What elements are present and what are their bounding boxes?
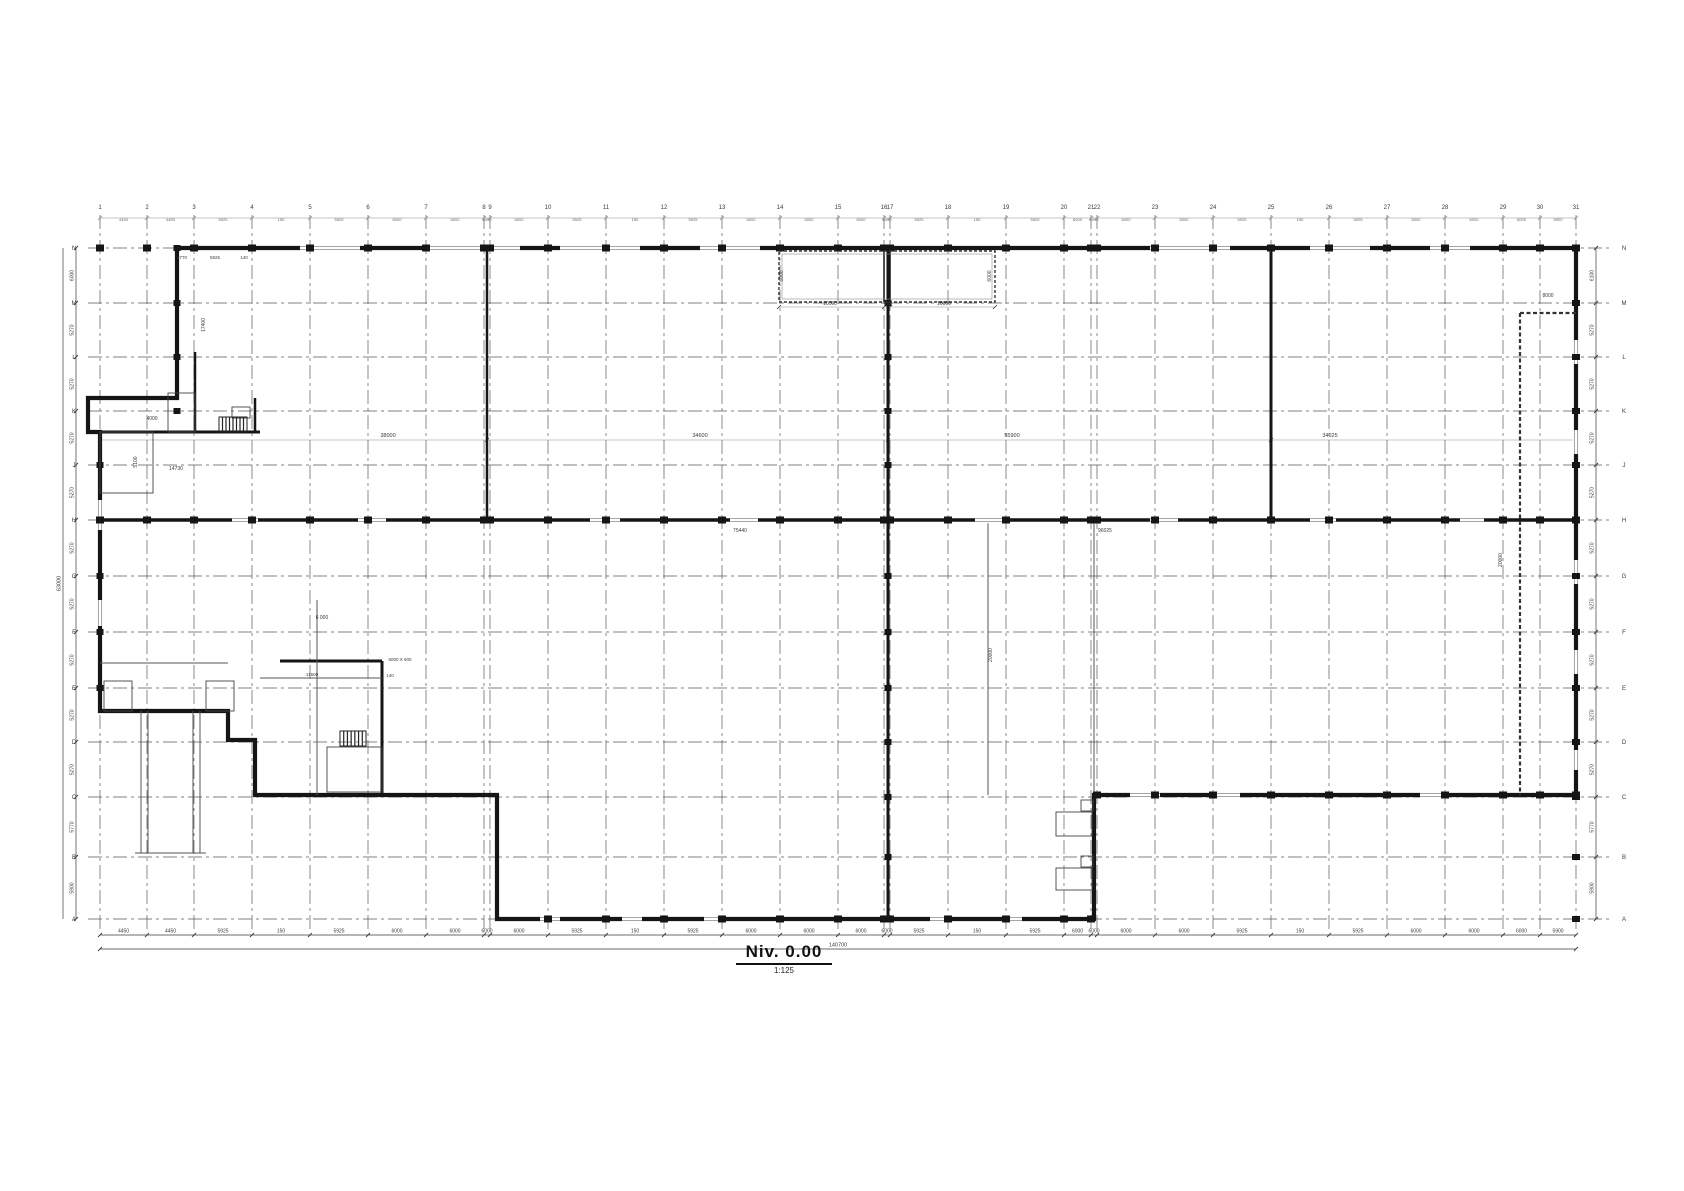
grid-col-label: 18 xyxy=(945,205,952,211)
grid-col-label: 11 xyxy=(603,205,610,211)
column xyxy=(97,573,104,579)
right-bay-dim: 5270 xyxy=(1590,654,1596,665)
column xyxy=(248,517,256,524)
bottom-bay-dim: 5925 xyxy=(1029,929,1040,935)
wall-opening xyxy=(1573,560,1579,584)
column xyxy=(660,245,668,252)
bottom-bay-dim: 6000 xyxy=(513,929,524,935)
bottom-bay-dim: 4450 xyxy=(165,929,176,935)
grid-col-label: 3 xyxy=(192,205,196,211)
left-bay-dim: 5270 xyxy=(70,432,76,443)
left-bay-dim: 5900 xyxy=(70,882,76,893)
column xyxy=(1002,916,1010,923)
bottom-bay-dim: 6000 xyxy=(745,929,756,935)
grid-col-label: 7 xyxy=(424,205,428,211)
column xyxy=(1572,794,1580,800)
column xyxy=(364,517,372,524)
column xyxy=(1572,354,1580,360)
grid-lines: 1234567891011121314151617181920212223242… xyxy=(72,205,1627,932)
wall-opening xyxy=(1150,245,1230,251)
left-bay-dim: 5270 xyxy=(70,598,76,609)
grid-col-label: 25 xyxy=(1268,205,1275,211)
column xyxy=(1267,792,1275,799)
column xyxy=(1572,462,1580,468)
grid-col-label: 20 xyxy=(1061,205,1068,211)
bottom-bay-dim: 6000 xyxy=(1516,929,1527,935)
grid-row-label-right: C xyxy=(1622,795,1627,801)
bottom-bay-dim: 6000 xyxy=(449,929,460,935)
left-bay-dim: 5270 xyxy=(70,709,76,720)
left-bay-dim: 5270 xyxy=(70,542,76,553)
column xyxy=(718,517,726,524)
grid-col-label: 24 xyxy=(1210,205,1217,211)
room-rect xyxy=(1056,812,1092,836)
column xyxy=(1536,792,1544,799)
grid-col-label: 22 xyxy=(1094,205,1101,211)
grid-col-label: 23 xyxy=(1152,205,1159,211)
column xyxy=(885,462,892,468)
column xyxy=(660,916,668,923)
annotation-text: 6 000 xyxy=(316,615,329,621)
wall-opening xyxy=(1460,517,1484,523)
grid-col-label: 27 xyxy=(1384,205,1391,211)
bottom-bay-dim: 6000 xyxy=(1072,929,1083,935)
bottom-bay-dim: 5925 xyxy=(687,929,698,935)
right-bay-dim: 5270 xyxy=(1590,542,1596,553)
column xyxy=(422,245,430,252)
annotation-text: 34025 xyxy=(1322,433,1337,439)
annotation-text: 8000 xyxy=(1542,293,1553,299)
column xyxy=(486,245,494,252)
column xyxy=(944,517,952,524)
grid-col-label: 29 xyxy=(1500,205,1507,211)
column xyxy=(97,517,104,523)
annotation-text: 2770 xyxy=(177,255,188,260)
column xyxy=(776,517,784,524)
column xyxy=(885,354,892,360)
column xyxy=(306,245,314,252)
level-title: Niv. 0.00 xyxy=(736,942,833,965)
column xyxy=(718,245,726,252)
grid-col-label: 2 xyxy=(145,205,149,211)
annotation-text: 96025 xyxy=(1098,528,1112,534)
wall-opening xyxy=(1420,792,1442,798)
right-bay-dim: 6100 xyxy=(1590,270,1596,281)
column xyxy=(174,408,181,414)
wall-opening xyxy=(1573,430,1579,454)
column xyxy=(1151,792,1159,799)
column xyxy=(1572,916,1580,922)
right-bay-dim: 5270 xyxy=(1590,324,1596,335)
details xyxy=(100,251,1093,890)
bottom-bay-dim: 6000 xyxy=(481,929,492,935)
annotation-text: 4000 xyxy=(146,416,157,422)
annotation-text: 11500 xyxy=(306,672,319,677)
annotation-text: 38000 xyxy=(380,433,395,439)
left-bay-dim: 5270 xyxy=(70,487,76,498)
annotations: 3800034600559003402514730754409602510000… xyxy=(133,255,1554,678)
bottom-bay-dim: 5925 xyxy=(1236,929,1247,935)
bottom-bay-dim: 5925 xyxy=(913,929,924,935)
annotation-text: 5925 xyxy=(210,255,221,260)
column xyxy=(602,916,610,923)
annotation-text: 150 xyxy=(884,301,892,306)
bottom-bay-dim: 5925 xyxy=(217,929,228,935)
annotation-text: 10000 xyxy=(937,301,951,307)
column xyxy=(1325,792,1333,799)
column xyxy=(1383,517,1391,524)
column xyxy=(885,629,892,635)
column xyxy=(1002,517,1010,524)
bottom-bay-dim: 5925 xyxy=(333,929,344,935)
column xyxy=(1383,792,1391,799)
column xyxy=(1572,408,1580,414)
column xyxy=(1209,245,1217,252)
column xyxy=(143,245,151,252)
annotation-text: 75440 xyxy=(733,528,747,534)
grid-col-label: 1 xyxy=(98,205,102,211)
grid-col-label: 14 xyxy=(777,205,784,211)
column xyxy=(248,245,256,252)
column xyxy=(1499,792,1507,799)
column xyxy=(486,517,494,524)
annotation-text: 6000 xyxy=(987,270,993,281)
room-rect xyxy=(100,432,153,493)
grid-col-label: 10 xyxy=(545,205,552,211)
column xyxy=(1060,916,1068,923)
grid-col-label: 13 xyxy=(719,205,726,211)
dimension-strings: 4450445044504450592559251501505925592560… xyxy=(57,216,1599,951)
column xyxy=(1087,916,1095,923)
grid-row-label-right: B xyxy=(1622,855,1626,861)
column xyxy=(1325,245,1333,252)
right-bay-dim: 5900 xyxy=(1590,882,1596,893)
column xyxy=(1572,517,1580,523)
column xyxy=(885,739,892,745)
column xyxy=(190,517,198,524)
wall-opening xyxy=(560,245,640,251)
bottom-bay-dim: 150 xyxy=(277,929,286,935)
grid-row-label-right: J xyxy=(1623,463,1626,469)
grid-row-label-right: F xyxy=(1622,630,1626,636)
left-bay-dim: 5270 xyxy=(70,654,76,665)
column xyxy=(885,854,892,860)
column xyxy=(544,916,552,923)
walls xyxy=(88,245,1580,923)
column xyxy=(1093,792,1101,799)
column xyxy=(1060,517,1068,524)
right-bay-dim: 5270 xyxy=(1590,378,1596,389)
bottom-bay-dim: 6000 xyxy=(1410,929,1421,935)
left-bay-dim: 5270 xyxy=(70,324,76,335)
column xyxy=(422,517,430,524)
room-rect xyxy=(327,747,382,792)
column xyxy=(1151,517,1159,524)
annotation-text: 20000 xyxy=(988,648,994,662)
column xyxy=(544,245,552,252)
room-rect xyxy=(1056,868,1092,890)
annotation-text: 5100 xyxy=(133,456,139,467)
bottom-bay-dim: 150 xyxy=(973,929,982,935)
column xyxy=(1572,300,1580,306)
column xyxy=(1572,854,1580,860)
column xyxy=(1151,245,1159,252)
right-bay-dim: 5770 xyxy=(1590,821,1596,832)
wall-opening xyxy=(1573,340,1579,364)
column xyxy=(1572,739,1580,745)
column xyxy=(1441,517,1449,524)
wall-opening xyxy=(700,245,760,251)
column xyxy=(1325,517,1333,524)
annotation-text: 14730 xyxy=(169,466,183,472)
column xyxy=(885,408,892,414)
left-bay-dim: 5770 xyxy=(70,821,76,832)
column xyxy=(1209,517,1217,524)
column xyxy=(1441,792,1449,799)
right-bay-dim: 5270 xyxy=(1590,432,1596,443)
annotation-text: 17400 xyxy=(201,318,207,332)
grid-row-label-right: K xyxy=(1622,409,1626,415)
column xyxy=(885,245,892,251)
grid-row-label-right: L xyxy=(1622,355,1626,361)
column xyxy=(1441,245,1449,252)
column xyxy=(885,573,892,579)
column xyxy=(174,300,181,306)
column xyxy=(97,629,104,635)
column xyxy=(1093,245,1101,252)
annotation-text: 10000 xyxy=(823,301,837,307)
bottom-bay-dim: 6000 xyxy=(1088,929,1099,935)
title-block: Niv. 0.00 1:125 xyxy=(684,942,884,975)
column xyxy=(885,517,892,523)
bottom-bay-dim: 150 xyxy=(1296,929,1305,935)
column xyxy=(1499,245,1507,252)
annotation-text: 34600 xyxy=(692,433,707,439)
column xyxy=(885,916,892,922)
wall-opening xyxy=(430,245,520,251)
wall-opening xyxy=(730,517,758,523)
bottom-bay-dim: 6000 xyxy=(391,929,402,935)
column xyxy=(1572,573,1580,579)
column xyxy=(364,245,372,252)
drawing-sheet: 1234567891011121314151617181920212223242… xyxy=(0,0,1684,1191)
scale-label: 1:125 xyxy=(684,966,884,975)
column xyxy=(1572,245,1580,251)
wall-opening xyxy=(622,916,642,922)
room-rect xyxy=(104,681,132,711)
column xyxy=(834,916,842,923)
grid-col-label: 26 xyxy=(1326,205,1333,211)
wall-opening xyxy=(975,517,1005,523)
annotation-text: 6000 xyxy=(779,270,785,281)
building-outline xyxy=(88,248,1576,919)
grid-col-label: 28 xyxy=(1442,205,1449,211)
left-bay-dim: 6000 xyxy=(70,270,76,281)
grid-col-label: 6 xyxy=(366,205,370,211)
wall-opening xyxy=(97,500,103,530)
column xyxy=(944,916,952,923)
grid-row-label-right: D xyxy=(1622,740,1627,746)
bottom-bay-dim: 5900 xyxy=(1552,929,1563,935)
column xyxy=(602,245,610,252)
grid-row-label-right: M xyxy=(1622,301,1627,307)
right-bay-dim: 5270 xyxy=(1590,764,1596,775)
column xyxy=(1499,517,1507,524)
bottom-bay-dim: 6000 xyxy=(1120,929,1131,935)
column xyxy=(190,245,198,252)
column xyxy=(97,685,104,691)
annotation-text: 20000 xyxy=(1498,553,1504,567)
column xyxy=(660,517,668,524)
annotation-text: 140 xyxy=(240,255,248,260)
column xyxy=(1536,245,1544,252)
column xyxy=(1002,245,1010,252)
grid-row-label-right: E xyxy=(1622,686,1626,692)
wall-opening xyxy=(1430,245,1470,251)
right-bay-dim: 5270 xyxy=(1590,487,1596,498)
column xyxy=(1572,685,1580,691)
column xyxy=(174,245,181,251)
bottom-bay-dim: 4450 xyxy=(118,929,129,935)
annotation-text: 140 xyxy=(386,673,394,678)
column xyxy=(1536,517,1544,524)
column xyxy=(1209,792,1217,799)
column xyxy=(885,794,892,800)
wall-opening xyxy=(1573,750,1579,770)
grid-col-label: 4 xyxy=(250,205,254,211)
wall-opening xyxy=(1310,245,1370,251)
column xyxy=(1383,245,1391,252)
column xyxy=(718,916,726,923)
column xyxy=(834,517,842,524)
right-bay-dim: 5270 xyxy=(1590,598,1596,609)
grid-row-label-right: G xyxy=(1622,574,1627,580)
bottom-bay-dim: 5925 xyxy=(571,929,582,935)
room-rect xyxy=(232,407,250,418)
bottom-bay-dim: 6000 xyxy=(881,929,892,935)
annotation-text: 55900 xyxy=(1004,433,1019,439)
column xyxy=(1267,245,1275,252)
column xyxy=(96,245,104,252)
grid-row-label-right: N xyxy=(1622,246,1626,252)
bottom-bay-dim: 5925 xyxy=(1352,929,1363,935)
column xyxy=(544,517,552,524)
grid-col-label: 17 xyxy=(887,205,894,211)
grid-col-label: 9 xyxy=(488,205,492,211)
left-bay-dim: 5270 xyxy=(70,764,76,775)
grid-col-label: 31 xyxy=(1573,205,1580,211)
column xyxy=(1572,629,1580,635)
bottom-bay-dim: 6000 xyxy=(1178,929,1189,935)
grid-col-label: 8 xyxy=(482,205,486,211)
grid-col-label: 30 xyxy=(1537,205,1544,211)
grid-col-label: 12 xyxy=(661,205,668,211)
grid-col-label: 15 xyxy=(835,205,842,211)
grid-row-label-right: A xyxy=(1622,917,1626,923)
bottom-bay-dim: 6000 xyxy=(855,929,866,935)
left-total-dim: 63000 xyxy=(57,576,63,591)
column xyxy=(885,685,892,691)
grid-col-label: 19 xyxy=(1003,205,1010,211)
column xyxy=(776,916,784,923)
grid-col-label: 5 xyxy=(308,205,312,211)
annotation-text: 6000 X 600 xyxy=(388,657,412,662)
bottom-bay-dim: 6000 xyxy=(1468,929,1479,935)
column xyxy=(1093,517,1101,524)
grid-row-label-right: H xyxy=(1622,518,1626,524)
right-bay-dim: 5270 xyxy=(1590,709,1596,720)
column xyxy=(306,517,314,524)
column xyxy=(1267,517,1275,524)
bottom-bay-dim: 6000 xyxy=(803,929,814,935)
column xyxy=(174,354,181,360)
column xyxy=(143,517,151,524)
wall-opening xyxy=(97,600,103,626)
column xyxy=(602,517,610,524)
left-bay-dim: 5270 xyxy=(70,378,76,389)
bottom-bay-dim: 150 xyxy=(631,929,640,935)
floor-plan-svg: 1234567891011121314151617181920212223242… xyxy=(0,0,1684,1191)
room-rect xyxy=(206,681,234,711)
wall-opening xyxy=(1573,650,1579,674)
column xyxy=(1060,245,1068,252)
